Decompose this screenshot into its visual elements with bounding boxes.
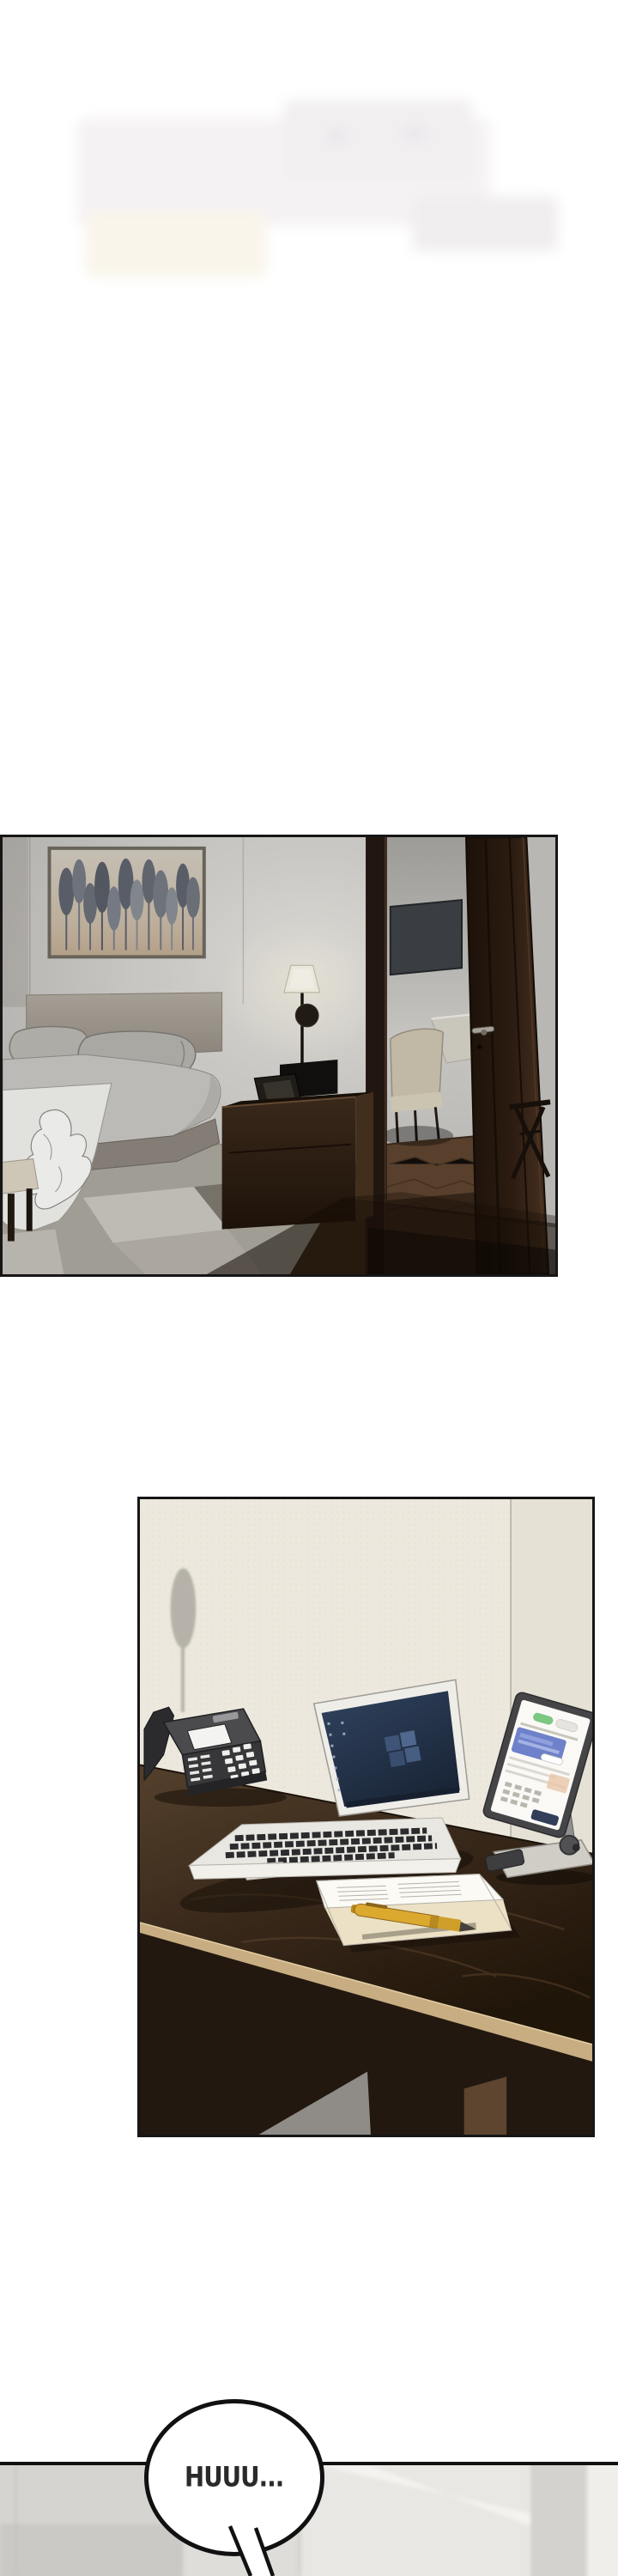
bedroom-scene	[3, 837, 555, 1274]
faded-blob	[403, 127, 427, 140]
speech-bubble-text: HUUU...	[185, 2462, 283, 2494]
flashback-faded-scene	[60, 93, 558, 290]
faded-blob	[412, 196, 558, 252]
faded-blob	[328, 129, 347, 144]
faded-blob	[283, 100, 472, 181]
vignette	[3, 837, 555, 1274]
panel-hotel-desk	[137, 1497, 595, 2137]
column	[530, 2465, 587, 2576]
webtoon-page: HUUU...	[0, 0, 618, 2576]
desk-scene	[140, 1499, 592, 2135]
panel-hotel-bedroom	[0, 835, 558, 1277]
faded-blob	[86, 213, 266, 277]
speech-bubble-tail	[216, 2523, 276, 2576]
